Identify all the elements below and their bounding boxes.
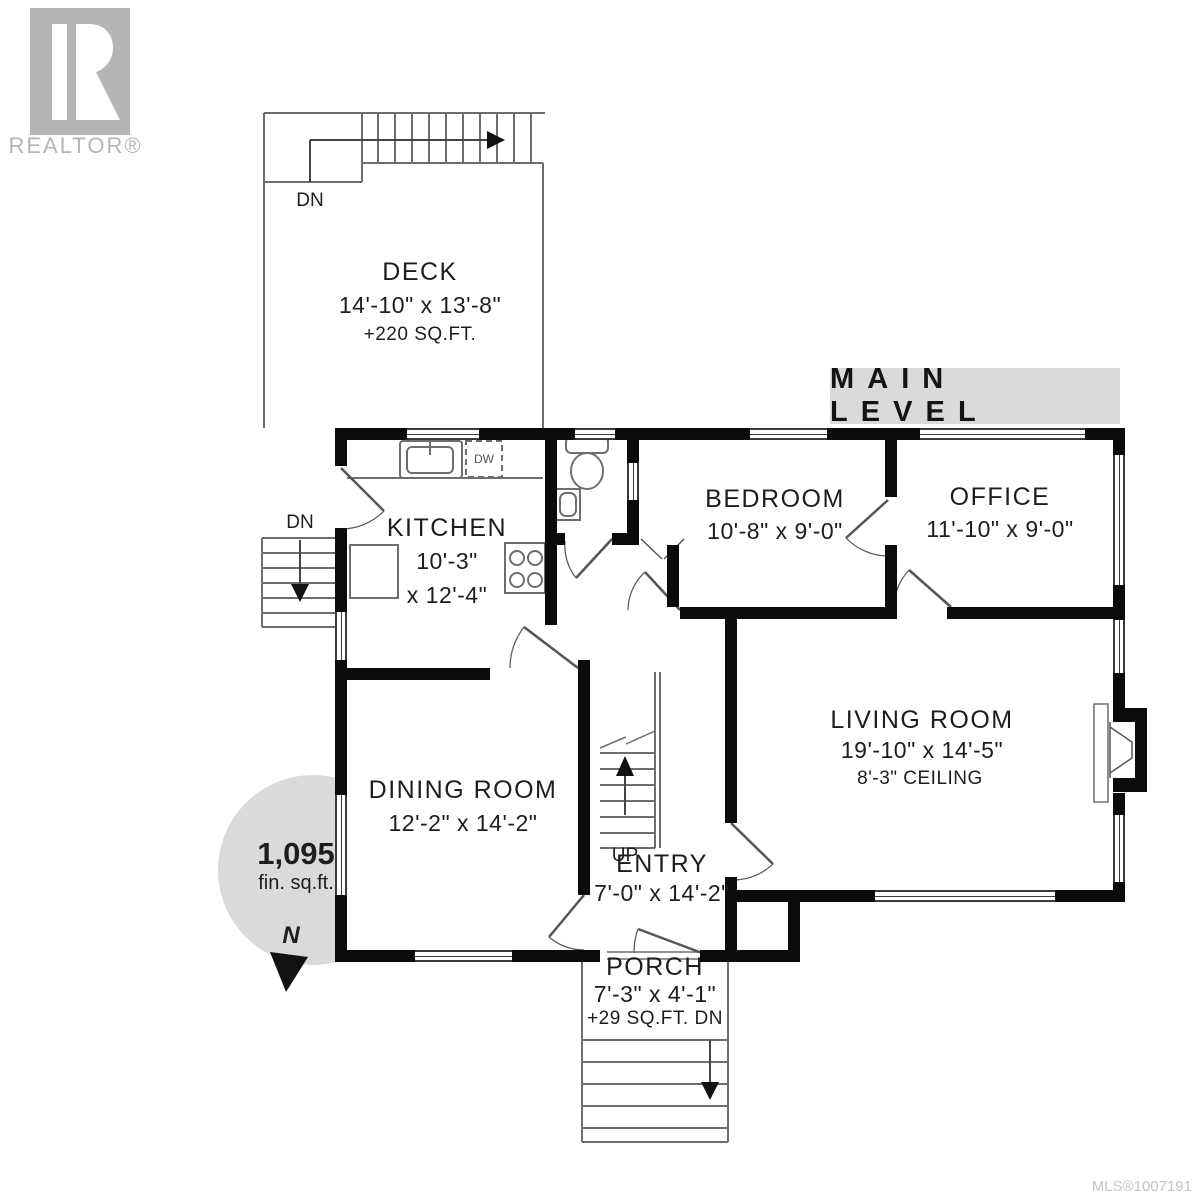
- wall-segment: [885, 545, 897, 619]
- level-title-box: MAIN LEVEL: [830, 368, 1120, 424]
- window: [335, 612, 347, 660]
- deck-down-arrow: [310, 131, 505, 182]
- room-dims-office: 11'-10" x 9'-0": [926, 516, 1073, 543]
- wall-segment: [545, 428, 557, 625]
- level-title: MAIN LEVEL: [830, 363, 1133, 429]
- wall-segment: [667, 545, 679, 607]
- room-dims-living: 19'-10" x 14'-5": [841, 737, 1003, 764]
- wall-segment: [340, 668, 490, 680]
- wall-segment: [335, 660, 347, 795]
- wall-segment: [612, 533, 639, 545]
- room-label-kitchen: KITCHEN: [387, 514, 507, 543]
- closet-slider: [627, 463, 639, 500]
- fireplace-wall: [1135, 722, 1147, 778]
- window: [1113, 455, 1125, 585]
- wall-segment: [1113, 882, 1125, 902]
- wall-segment: [627, 428, 639, 463]
- wall-segment: [827, 428, 920, 440]
- room-dims-entry: 7'-0" x 14'-2": [594, 880, 730, 907]
- window: [1113, 815, 1125, 882]
- wall-segment: [700, 950, 800, 962]
- fireplace-wall: [1113, 708, 1147, 722]
- deck-dn-label: DN: [296, 190, 323, 212]
- wall-segment: [545, 533, 565, 545]
- wall-segment: [479, 428, 575, 440]
- wall-segment: [512, 950, 600, 962]
- window: [335, 795, 347, 895]
- window: [415, 950, 512, 962]
- dishwasher-label: DW: [474, 452, 494, 466]
- room-dims-porch: 7'-3" x 4'-1": [594, 981, 716, 1008]
- window: [407, 428, 479, 440]
- room-label-dining: DINING ROOM: [369, 776, 558, 805]
- side-dn-label: DN: [286, 512, 313, 534]
- up-label: UP: [612, 845, 638, 867]
- wall-segment: [1113, 428, 1125, 455]
- room-label-deck: DECK: [382, 258, 457, 287]
- side-stairs-down-arrow: [291, 540, 309, 602]
- wall-segment: [335, 428, 347, 466]
- room-dims-dining: 12'-2" x 14'-2": [389, 810, 538, 837]
- room-label-living: LIVING ROOM: [830, 706, 1013, 735]
- room-dims-kitchen-1: 10'-3": [416, 548, 478, 575]
- wall-segment: [947, 607, 1125, 619]
- wall-segment: [737, 890, 875, 902]
- wall-segment: [1113, 673, 1125, 708]
- wall-segment: [335, 528, 347, 612]
- room-note-living: 8'-3" CEILING: [857, 768, 983, 790]
- window: [875, 890, 1055, 902]
- wall-segment: [788, 902, 800, 950]
- window: [575, 428, 615, 440]
- mls-number: MLS®1007191: [1092, 1178, 1192, 1195]
- wall-segment: [725, 607, 737, 823]
- wall-segment: [627, 500, 639, 533]
- realtor-wordmark: REALTOR®: [8, 133, 143, 159]
- room-dims-bedroom: 10'-8" x 9'-0": [707, 518, 843, 545]
- north-arrow-icon: [270, 952, 308, 992]
- area-value: 1,095: [257, 836, 335, 872]
- window: [920, 428, 1085, 440]
- wall-segment: [885, 428, 897, 497]
- porch-down-arrow: [701, 1040, 719, 1100]
- window: [750, 428, 827, 440]
- wall-segment: [680, 607, 897, 619]
- room-label-office: OFFICE: [950, 483, 1051, 512]
- room-dims-kitchen-2: x 12'-4": [407, 582, 487, 609]
- wall-segment: [578, 660, 590, 895]
- floor-plan-canvas: MAIN LEVEL DECK 14'-10" x 13'-8" +220 SQ…: [0, 0, 1200, 1200]
- window: [1113, 620, 1125, 673]
- realtor-logo-icon: [30, 8, 130, 135]
- room-label-bedroom: BEDROOM: [705, 485, 845, 514]
- fireplace-wall: [1113, 778, 1147, 792]
- area-unit: fin. sq.ft.: [258, 872, 334, 895]
- fridge: [350, 545, 398, 598]
- wall-segment: [335, 950, 415, 962]
- room-note-porch: +29 SQ.FT. DN: [587, 1008, 723, 1030]
- toilet-bowl: [571, 453, 603, 489]
- north-label: N: [282, 922, 299, 950]
- room-label-porch: PORCH: [606, 953, 704, 982]
- wall-segment: [1113, 793, 1125, 815]
- bathroom-fixtures: [556, 437, 608, 520]
- room-note-deck: +220 SQ.FT.: [364, 324, 477, 346]
- room-dims-deck: 14'-10" x 13'-8": [339, 292, 501, 319]
- up-stairs: [600, 672, 660, 848]
